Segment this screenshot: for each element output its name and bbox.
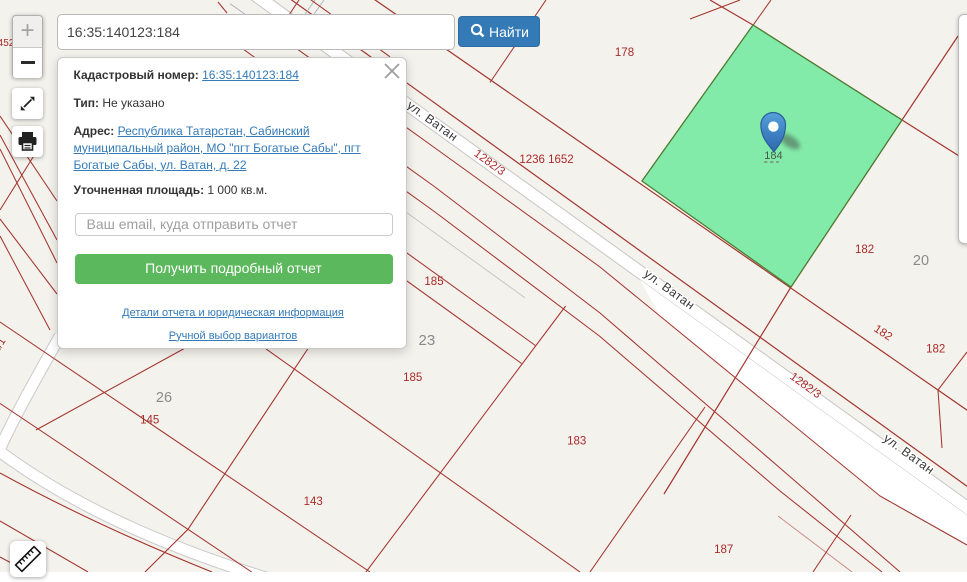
svg-text:183: 183 [567,436,586,448]
svg-text:182: 182 [855,244,874,256]
svg-text:145: 145 [140,415,159,427]
svg-text:20: 20 [913,253,929,269]
svg-text:187: 187 [714,544,733,556]
svg-text:185: 185 [424,276,443,288]
svg-text:143: 143 [304,496,323,508]
svg-text:23: 23 [419,332,436,349]
svg-text:185: 185 [403,372,422,384]
svg-text:26: 26 [156,390,172,406]
svg-text:1236 1652: 1236 1652 [519,154,573,166]
svg-text:182: 182 [926,343,945,355]
svg-text:178: 178 [615,47,634,59]
